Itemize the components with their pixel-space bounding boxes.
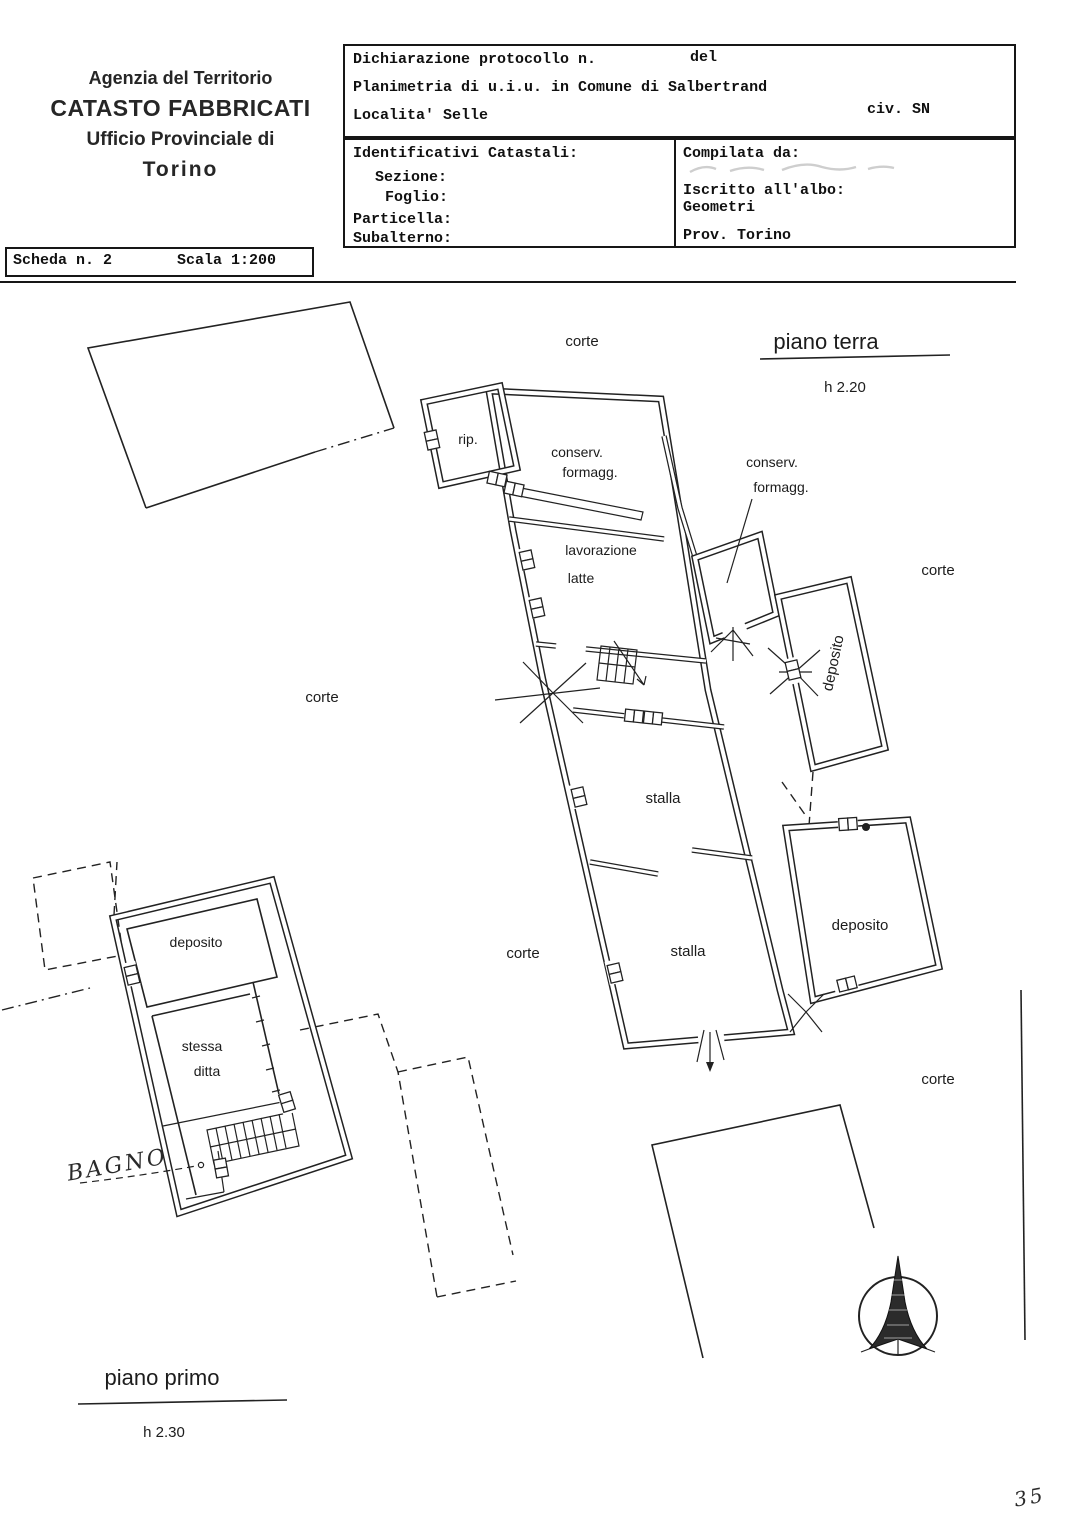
stair-symbol-first-floor (207, 1112, 299, 1164)
province-label: Prov. Torino (683, 227, 791, 244)
room-label-deposito-left: deposito (170, 934, 223, 950)
room-label-deposito-lower: deposito (832, 917, 889, 934)
room-label-stalla-lower: stalla (670, 943, 706, 960)
header-bottom-rule (0, 281, 1016, 283)
field-foglio: Foglio: (385, 189, 448, 206)
compiled-by-title: Compilata da: (683, 145, 800, 162)
handwritten-page-number: 35 (1012, 1482, 1047, 1511)
cadastral-floorplan-sheet: corte piano terra h 2.20 rip. conserv. f… (0, 0, 1086, 1536)
room-label-latte: latte (568, 570, 595, 586)
agency-office: Ufficio Provinciale di (28, 129, 333, 151)
identifiers-title: Identificativi Catastali: (353, 145, 578, 162)
agency-name: Agenzia del Territorio (28, 68, 333, 89)
room-label-conserv-1: conserv. (551, 444, 603, 460)
courtyard-label-center: corte (506, 945, 539, 962)
albo-label: Iscritto all'albo: (683, 182, 845, 199)
protocol-label: Dichiarazione protocollo n. (353, 51, 596, 68)
handwritten-label-bagno: BAGNO (64, 1144, 170, 1186)
floor-height-ground: h 2.20 (824, 379, 866, 396)
survey-point-dot (862, 823, 870, 831)
sheet-number-box: Scheda n. 2 Scala 1:200 (5, 247, 314, 277)
bagno-leader-endpoint (198, 1162, 203, 1167)
civic-number: civ. SN (867, 101, 930, 118)
floor-title-ground: piano terra (773, 329, 879, 354)
room-label-lavorazione: lavorazione (565, 542, 637, 558)
agency-letterhead: Agenzia del Territorio CATASTO FABBRICAT… (28, 68, 333, 182)
room-label-conserv-2: formagg. (562, 464, 617, 480)
room-label-stessa: stessa (182, 1038, 223, 1054)
north-arrow-icon (859, 1256, 937, 1355)
courtyard-label-top: corte (565, 333, 598, 350)
agency-city: Torino (28, 158, 333, 182)
callout-label-conserv2-2: formagg. (753, 479, 808, 495)
floor-height-first: h 2.30 (143, 1424, 185, 1441)
room-label-stalla-upper: stalla (645, 790, 681, 807)
floor-title-first: piano primo (105, 1365, 220, 1390)
localita-line: Localita' Selle (353, 107, 488, 124)
courtyard-label-left: corte (305, 689, 338, 706)
room-label-ditta: ditta (194, 1063, 221, 1079)
agency-register: CATASTO FABBRICATI (28, 95, 333, 122)
courtyard-label-right-upper: corte (921, 562, 954, 579)
floor-title-underline (760, 355, 950, 359)
field-subalterno: Subalterno: (353, 230, 452, 247)
room-label-rip: rip. (458, 431, 477, 447)
callout-label-conserv2-1: conserv. (746, 454, 798, 470)
box-divider (674, 138, 676, 246)
planimetria-line: Planimetria di u.i.u. in Comune di Salbe… (353, 79, 767, 96)
stair-symbol-ground-floor (597, 641, 646, 685)
room-label-deposito-side: deposito (819, 634, 847, 693)
scale-value: Scala 1:200 (177, 252, 276, 269)
door-swing-passage (788, 994, 824, 1032)
field-sezione: Sezione: (375, 169, 447, 186)
sheet-number: Scheda n. 2 (13, 252, 112, 269)
courtyard-label-right-lower: corte (921, 1071, 954, 1088)
protocol-del-label: del (690, 49, 717, 66)
identifiers-box: Identificativi Catastali: Sezione: Fogli… (343, 136, 1016, 248)
floor-title-underline-first (78, 1400, 287, 1404)
field-particella: Particella: (353, 211, 452, 228)
declaration-box: Dichiarazione protocollo n. del Planimet… (343, 44, 1016, 140)
albo-value: Geometri (683, 199, 755, 216)
